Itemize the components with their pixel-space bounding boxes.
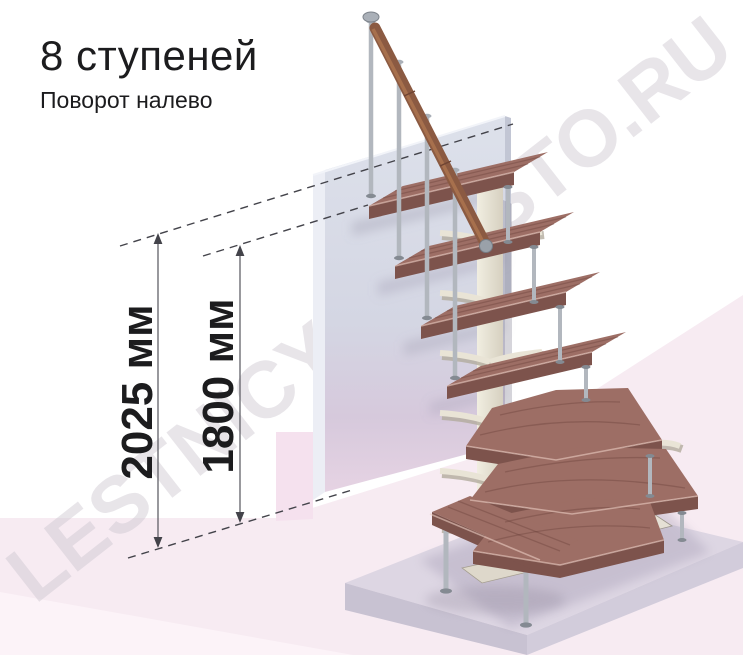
page-subtitle: Поворот налево xyxy=(40,87,258,114)
dimension-label-total: 2025 мм xyxy=(113,304,162,479)
leg-foot xyxy=(520,622,532,627)
illustration-canvas: LESTNICY-PROSTO.RU 2025 мм xyxy=(0,0,743,655)
dimension-label-top-step: 1800 мм xyxy=(194,298,243,473)
handrail-top-cap xyxy=(363,12,379,22)
wall-side-face xyxy=(313,170,325,500)
handrail-end-cap xyxy=(480,240,493,253)
page-title: 8 ступеней xyxy=(40,34,258,78)
leg-foot xyxy=(440,588,452,593)
title-block: 8 ступеней Поворот налево xyxy=(40,34,258,114)
